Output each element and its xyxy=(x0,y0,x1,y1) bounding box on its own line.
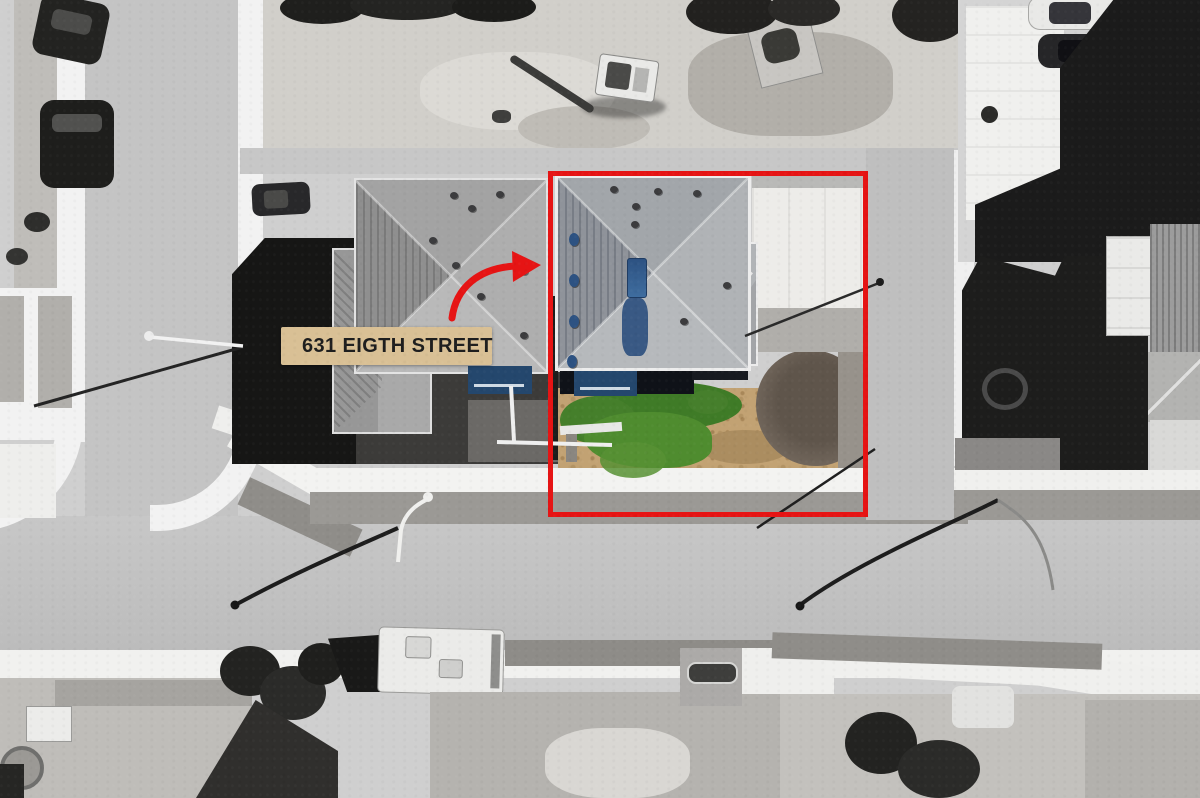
address-label: 631 EIGTH STREET xyxy=(281,327,492,365)
garden-bed-dark xyxy=(687,662,738,684)
trampoline-ring xyxy=(982,368,1028,410)
garden-bed-southwest xyxy=(55,680,252,706)
parked-car-icon xyxy=(251,182,311,217)
parked-car-icon xyxy=(40,100,114,188)
vegetation-patch xyxy=(955,438,1060,472)
excavator-icon xyxy=(594,53,659,103)
car-windshield xyxy=(1049,2,1091,24)
property-boundary-box xyxy=(548,171,868,517)
small-shed xyxy=(26,706,72,742)
excavator-cab xyxy=(605,61,632,90)
rv-trailer-icon xyxy=(377,626,505,695)
roof-vent xyxy=(452,262,460,269)
roof-vent xyxy=(520,268,528,275)
roof-vent xyxy=(520,332,528,339)
concrete-pad xyxy=(952,686,1014,728)
lot-far-southeast xyxy=(1085,700,1200,798)
roof-vent xyxy=(450,192,458,199)
side-alley xyxy=(866,148,954,520)
planter-bed xyxy=(0,296,24,402)
white-shed xyxy=(1106,236,1156,336)
roof-vent xyxy=(496,191,504,198)
sidewalk-east-2 xyxy=(954,470,1200,490)
excavator-engine xyxy=(632,67,649,93)
shrub xyxy=(6,248,28,265)
garage-trim xyxy=(474,384,524,387)
rv-cab xyxy=(490,634,500,688)
driveway-west xyxy=(0,444,56,518)
car-windshield xyxy=(50,8,93,36)
tree xyxy=(898,740,980,798)
aerial-photo: 631 EIGTH STREET xyxy=(0,0,1200,798)
address-text: 631 EIGTH STREET xyxy=(302,335,493,358)
parkway-vegetation-east xyxy=(954,490,1200,520)
rv-window xyxy=(405,636,432,659)
small-tree xyxy=(981,106,998,123)
dark-structure xyxy=(0,764,24,798)
roof-vent xyxy=(477,293,485,300)
excavator-bucket xyxy=(492,110,511,123)
trailer-load xyxy=(759,26,802,66)
street-horizontal xyxy=(0,516,1200,652)
roof-vent xyxy=(468,205,476,212)
car-windshield xyxy=(264,190,289,209)
rv-vent xyxy=(439,659,463,679)
shrub xyxy=(24,212,50,232)
neighbor-garage-blue xyxy=(468,366,532,394)
car-windshield xyxy=(52,114,102,132)
neighbor-roof-gable xyxy=(1148,352,1200,422)
light-ground-patch xyxy=(545,728,690,798)
roof-vent xyxy=(429,237,437,244)
planter-bed xyxy=(38,296,72,408)
